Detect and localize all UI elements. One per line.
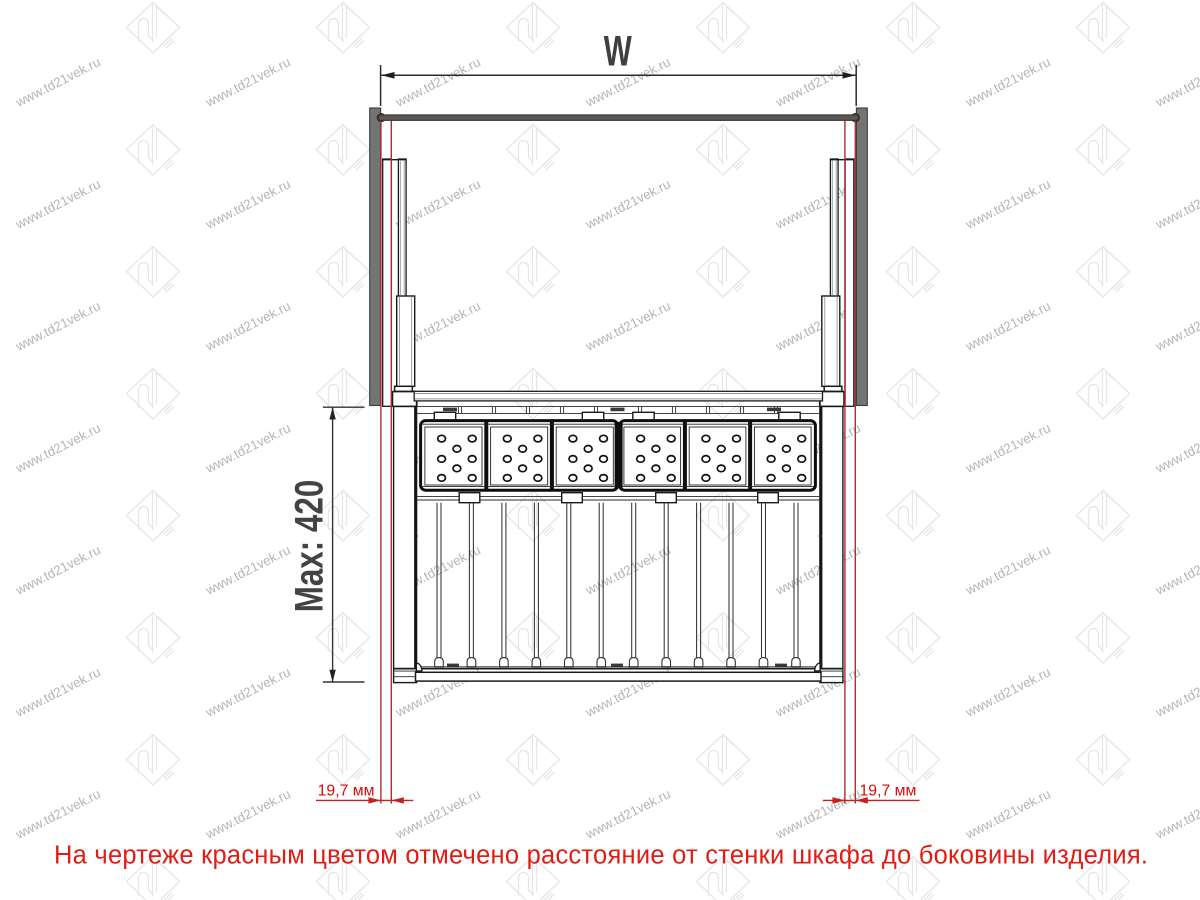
- svg-text:На чертеже красным цветом отме: На чертеже красным цветом отмечено расст…: [54, 842, 1148, 870]
- svg-text:Max: 420: Max: 420: [286, 480, 332, 613]
- svg-text:19,7 мм: 19,7 мм: [860, 783, 917, 800]
- svg-text:W: W: [604, 27, 632, 75]
- svg-text:19,7 мм: 19,7 мм: [318, 783, 375, 800]
